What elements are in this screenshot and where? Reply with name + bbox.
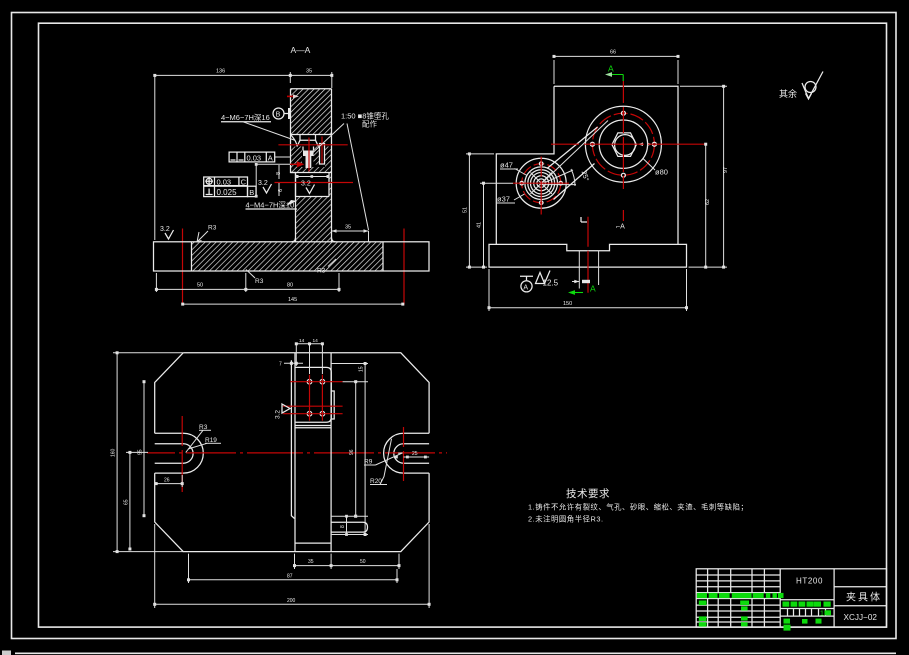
svg-text:ø47: ø47 (500, 161, 513, 170)
svg-text:4−M6−7H深16: 4−M6−7H深16 (221, 113, 270, 122)
svg-text:35: 35 (306, 69, 312, 75)
svg-text:⌐A: ⌐A (616, 224, 625, 231)
svg-text:97: 97 (723, 167, 729, 173)
svg-text:35: 35 (345, 225, 351, 231)
svg-text:2.未注明圆角半径R3.: 2.未注明圆角半径R3. (528, 515, 604, 524)
svg-text:96: 96 (349, 449, 355, 455)
svg-text:R3: R3 (208, 225, 217, 232)
svg-text:R9: R9 (364, 459, 373, 466)
svg-text:3.2: 3.2 (160, 226, 170, 233)
svg-text:3.2: 3.2 (275, 410, 282, 419)
svg-text:XCJJ−02: XCJJ−02 (844, 613, 878, 622)
svg-text:87: 87 (287, 573, 293, 579)
svg-text:136: 136 (216, 69, 225, 75)
svg-text:HT200: HT200 (796, 577, 823, 586)
svg-text:R3: R3 (317, 268, 326, 275)
svg-text:ø37: ø37 (497, 195, 510, 204)
svg-text:3.2: 3.2 (301, 181, 311, 188)
svg-text:160: 160 (111, 448, 117, 457)
svg-text:技术要求: 技术要求 (566, 487, 610, 500)
svg-text:50: 50 (197, 283, 203, 289)
svg-text:A: A (608, 64, 614, 74)
svg-text:0.03: 0.03 (217, 177, 232, 186)
svg-text:A: A (590, 284, 596, 294)
svg-text:80: 80 (287, 283, 293, 289)
svg-text:R3: R3 (255, 278, 264, 285)
svg-text:夹具体: 夹具体 (846, 590, 882, 603)
svg-text:A: A (523, 285, 528, 292)
svg-text:其余: 其余 (779, 88, 797, 99)
svg-text:200: 200 (287, 598, 296, 604)
svg-text:A—A: A—A (291, 45, 311, 55)
svg-text:3.2: 3.2 (258, 180, 268, 187)
svg-text:C: C (241, 177, 247, 186)
svg-text:50: 50 (360, 559, 366, 565)
svg-text:B: B (276, 112, 281, 119)
svg-text:14: 14 (299, 338, 305, 344)
svg-text:8: 8 (340, 525, 346, 528)
svg-text:12.5: 12.5 (543, 279, 559, 288)
svg-text:95: 95 (138, 449, 144, 455)
svg-text:0.025: 0.025 (217, 188, 238, 197)
svg-text:A: A (268, 153, 273, 162)
svg-text:7: 7 (279, 361, 282, 367)
svg-text:150: 150 (563, 301, 572, 307)
svg-text:26: 26 (164, 477, 170, 483)
svg-text:ø80: ø80 (655, 168, 668, 177)
svg-text:145: 145 (288, 297, 297, 303)
svg-text:51: 51 (463, 207, 469, 213)
svg-text:65: 65 (123, 499, 129, 505)
svg-text:41: 41 (477, 222, 483, 228)
svg-text:62: 62 (705, 199, 711, 205)
svg-text:25: 25 (412, 451, 418, 457)
svg-text:0.03: 0.03 (247, 153, 262, 162)
svg-text:B: B (249, 188, 254, 197)
svg-text:1.铸件不允许有裂纹、气孔、砂眼、缩松、夹渣、毛刺等缺陷；: 1.铸件不允许有裂纹、气孔、砂眼、缩松、夹渣、毛刺等缺陷； (528, 503, 748, 512)
svg-text:配作: 配作 (362, 119, 377, 129)
svg-text:35: 35 (308, 559, 314, 565)
svg-text:14: 14 (313, 338, 319, 344)
svg-text:66: 66 (610, 50, 616, 56)
svg-text:1: 1 (820, 610, 824, 617)
svg-text:15: 15 (359, 366, 365, 372)
